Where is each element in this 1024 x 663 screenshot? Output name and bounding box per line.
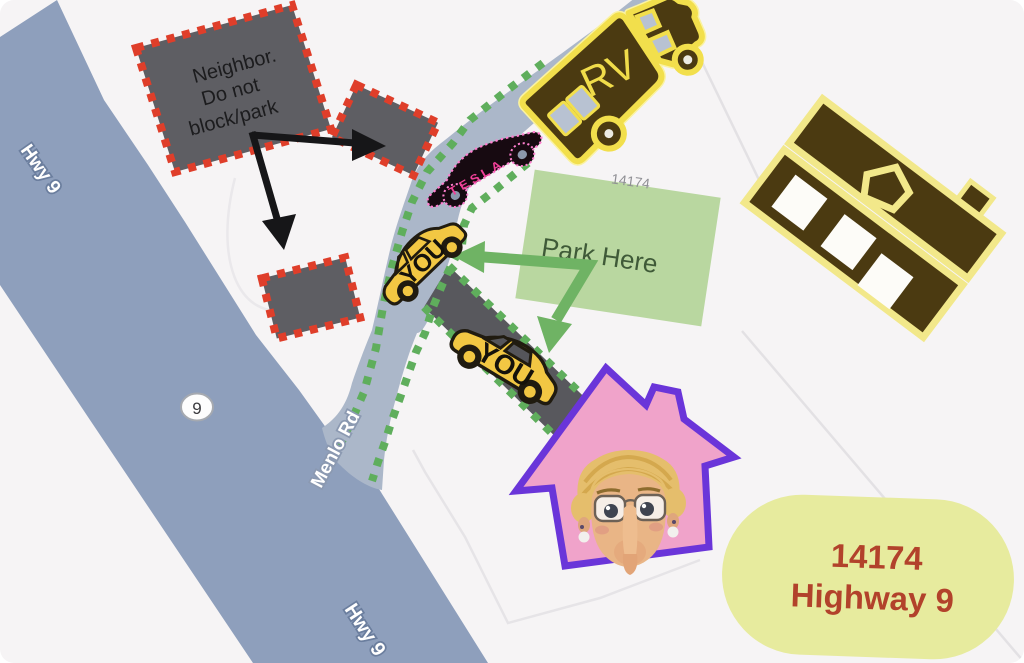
svg-text:Highway 9: Highway 9 bbox=[790, 576, 954, 619]
svg-text:14174: 14174 bbox=[830, 537, 924, 577]
svg-text:9: 9 bbox=[192, 399, 201, 418]
